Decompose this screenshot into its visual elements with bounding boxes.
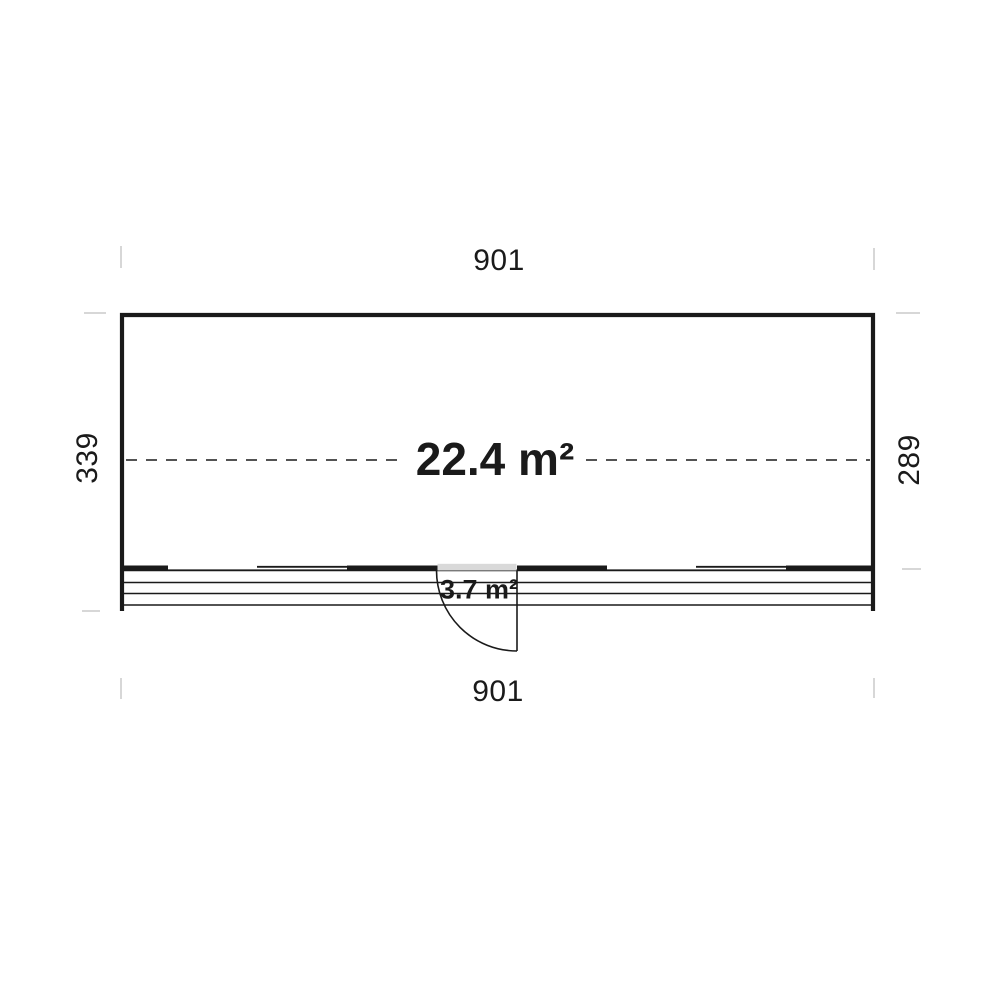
main-area-label: 22.4 m²	[406, 434, 585, 484]
dimension-width-top: 901	[473, 246, 525, 276]
front-wall	[120, 564, 875, 571]
floor-plan-drawing	[0, 0, 1000, 1000]
floor-plan-canvas: 901 339 289 22.4 m² 3.7 m² 901	[0, 0, 1000, 1000]
dimension-height-left: 339	[73, 432, 103, 484]
door-opening	[438, 564, 517, 571]
dimension-height-right: 289	[895, 434, 925, 486]
terrace-area-label: 3.7 m²	[440, 577, 518, 604]
dimension-width-bottom: 901	[472, 677, 524, 707]
